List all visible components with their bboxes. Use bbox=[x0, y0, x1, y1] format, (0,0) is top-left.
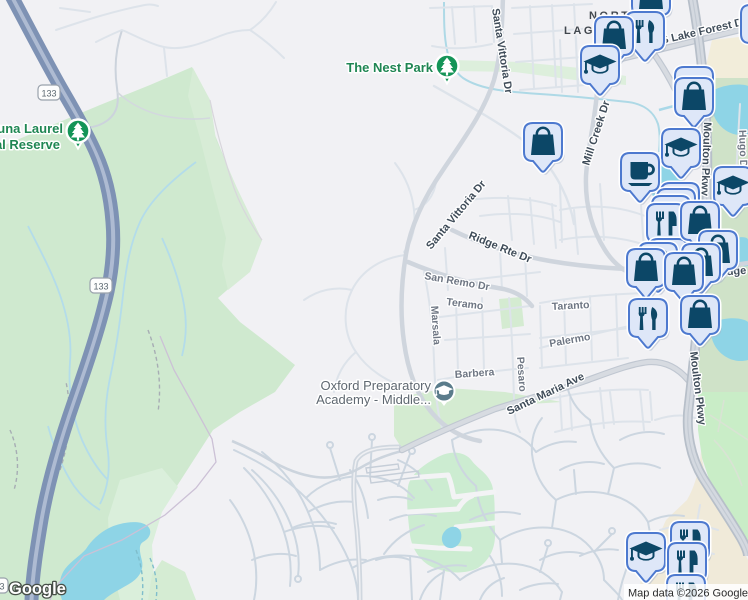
svg-text:una Laurel: una Laurel bbox=[0, 121, 63, 136]
svg-text:al Reserve: al Reserve bbox=[0, 137, 60, 152]
svg-text:Oxford Preparatory: Oxford Preparatory bbox=[320, 378, 431, 393]
svg-text:The Nest Park: The Nest Park bbox=[346, 60, 433, 75]
svg-text:Map data ©2026 Google: Map data ©2026 Google bbox=[628, 588, 748, 600]
svg-text:Pesaro: Pesaro bbox=[514, 356, 528, 392]
svg-text:Google: Google bbox=[9, 580, 66, 598]
svg-text:Academy - Middle...: Academy - Middle... bbox=[316, 392, 431, 407]
svg-text:Taranto: Taranto bbox=[552, 299, 590, 313]
svg-text:133: 133 bbox=[0, 582, 5, 592]
svg-text:133: 133 bbox=[93, 282, 108, 292]
svg-text:133: 133 bbox=[41, 89, 56, 99]
